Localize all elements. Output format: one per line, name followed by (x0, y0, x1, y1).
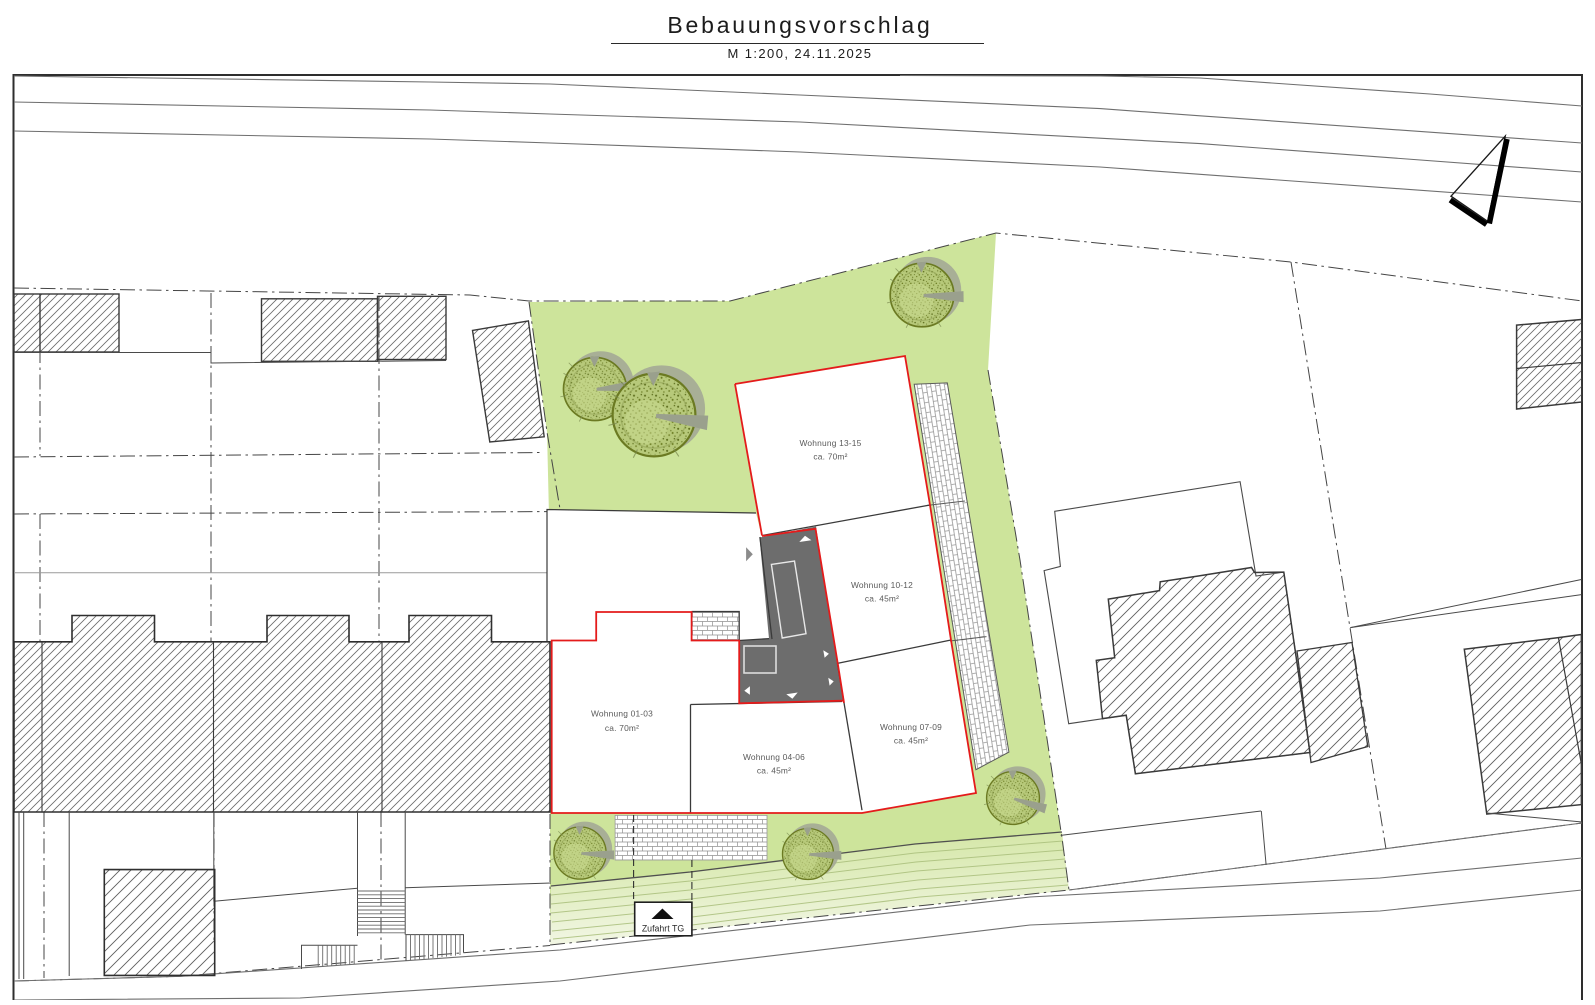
svg-text:Wohnung 01-03: Wohnung 01-03 (591, 709, 653, 719)
svg-text:ca. 70m²: ca. 70m² (813, 452, 847, 462)
svg-text:Wohnung 13-15: Wohnung 13-15 (799, 438, 861, 448)
svg-text:ca. 45m²: ca. 45m² (757, 766, 791, 776)
svg-text:ca. 45m²: ca. 45m² (865, 594, 899, 604)
svg-text:Wohnung 04-06: Wohnung 04-06 (743, 752, 805, 762)
svg-text:ca. 45m²: ca. 45m² (894, 736, 928, 746)
svg-text:Zufahrt TG: Zufahrt TG (642, 924, 685, 934)
svg-text:Wohnung 07-09: Wohnung 07-09 (880, 722, 942, 732)
svg-text:Wohnung 10-12: Wohnung 10-12 (851, 580, 913, 590)
svg-text:ca. 70m²: ca. 70m² (605, 723, 639, 733)
